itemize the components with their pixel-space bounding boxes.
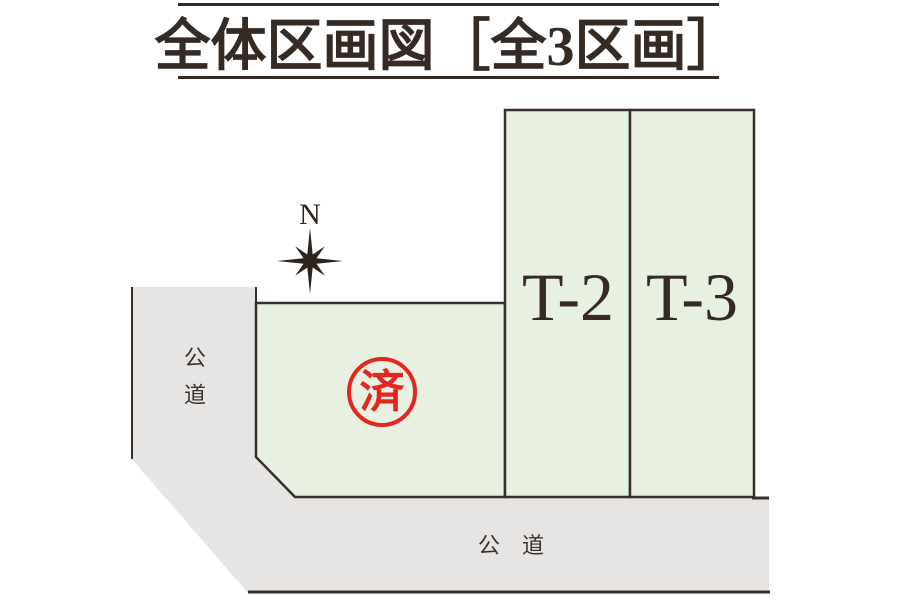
compass-star-icon xyxy=(277,228,343,294)
plot-t3-label: T-3 xyxy=(646,263,738,331)
sold-stamp-label: 済 xyxy=(359,370,404,415)
road-bottom-label: 公 道 xyxy=(478,535,544,557)
page-title: 全体区画図［全3区画］ xyxy=(178,3,719,79)
plot-t2-label: T-2 xyxy=(522,263,614,331)
site-plan-page: 全体区画図［全3区画］ N T-2 T-3 公道 公 道 済 xyxy=(0,0,900,600)
compass-north-label: N xyxy=(299,198,321,232)
road-left-label: 公道 xyxy=(182,346,204,420)
sold-stamp: 済 xyxy=(347,357,417,427)
site-plan-drawing xyxy=(0,0,900,600)
